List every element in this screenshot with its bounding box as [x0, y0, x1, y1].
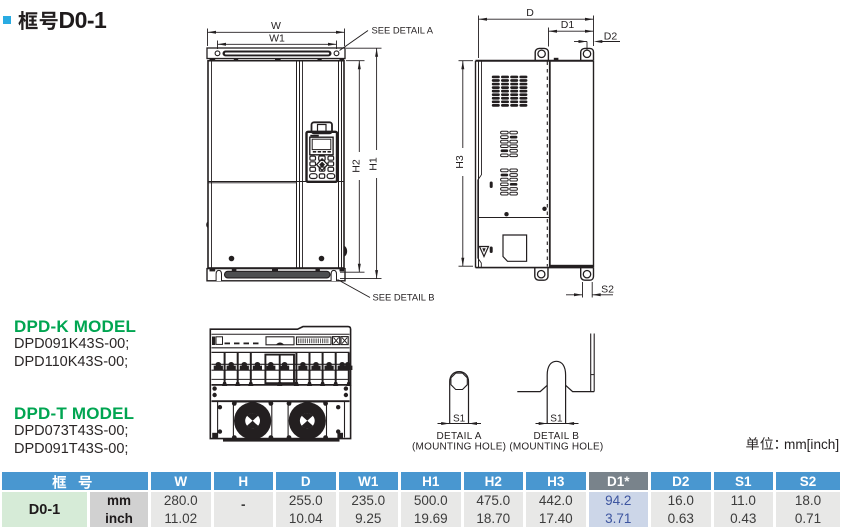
svg-text:H2: H2 — [350, 159, 362, 173]
svg-text:S1: S1 — [550, 413, 563, 424]
svg-text:mm[inch]: mm[inch] — [784, 437, 839, 452]
svg-text:DETAIL B: DETAIL B — [534, 431, 580, 442]
svg-text:W1: W1 — [269, 32, 285, 44]
svg-text:(MOUNTING HOLE): (MOUNTING HOLE) — [412, 442, 506, 453]
svg-text:H3: H3 — [454, 155, 466, 169]
svg-text:H1: H1 — [368, 157, 380, 171]
svg-text:SEE DETAIL A: SEE DETAIL A — [372, 25, 434, 36]
svg-text:SEE DETAIL B: SEE DETAIL B — [373, 292, 435, 303]
svg-text:D: D — [526, 7, 534, 19]
svg-text:W: W — [271, 20, 281, 32]
svg-text:DETAIL A: DETAIL A — [436, 431, 481, 442]
svg-text:D1: D1 — [561, 19, 575, 31]
svg-text:(MOUNTING HOLE): (MOUNTING HOLE) — [509, 442, 603, 453]
svg-text:S1: S1 — [453, 413, 466, 424]
svg-text:D2: D2 — [604, 31, 618, 43]
svg-text:S2: S2 — [601, 283, 614, 295]
